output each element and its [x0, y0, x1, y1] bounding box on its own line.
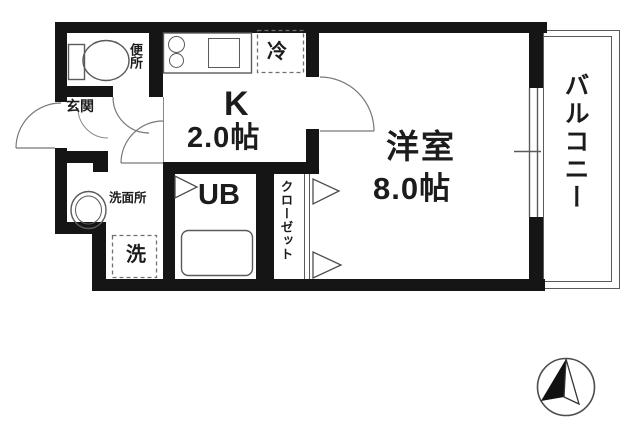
compass-north-icon: [538, 359, 595, 416]
window-icon: [514, 88, 541, 217]
wall-right-upper: [529, 22, 543, 88]
stove-burner-icon: [170, 54, 184, 68]
closet-door-icon: [305, 174, 342, 279]
wall-right-lower: [529, 217, 543, 291]
refrigerator-label: 冷: [267, 42, 287, 62]
closet-door-triangle: [313, 252, 341, 278]
wall-top: [55, 22, 547, 33]
kitchen-size-label: 2.0帖: [187, 124, 260, 153]
washroom-label: 洗面所: [109, 192, 147, 205]
wall-bottom: [92, 279, 545, 291]
balcony-label: バルコニー: [562, 72, 587, 247]
entrance-door-swing-arc: [16, 103, 61, 148]
toilet-tank: [69, 45, 85, 80]
bathtub-icon: [182, 231, 253, 276]
kitchen-sink-icon: [209, 39, 240, 68]
western-room-size-label: 8.0帖: [373, 173, 451, 204]
kitchen-label: K: [224, 87, 249, 121]
door-arc: [320, 77, 374, 131]
western-room-door-swing-arc: [320, 77, 374, 131]
western-room-label: 洋室: [386, 130, 456, 163]
wall-toilet-right: [149, 22, 163, 97]
door-arc: [121, 121, 163, 163]
entrance-label: 玄関: [66, 99, 94, 113]
wall-washroom-ub: [163, 162, 175, 291]
wall-kitchen-room-upper: [306, 22, 319, 77]
wall-ub-closet: [256, 162, 274, 291]
toilet-bowl: [83, 41, 129, 81]
closet-label: クローゼット: [279, 180, 292, 280]
door-arc: [16, 103, 61, 148]
stove-burner-icon: [169, 37, 185, 53]
floor-plan-drawing: [0, 0, 640, 434]
wall-hall-pier: [93, 151, 108, 172]
unit-bath-door-triangle: [175, 176, 197, 198]
compass-needle-light: [564, 359, 579, 404]
kitchen-counter-icon: [164, 33, 252, 73]
washroom-door-swing-arc: [121, 121, 163, 163]
unit-bath-label: UB: [198, 181, 240, 210]
toilet-icon: [69, 41, 130, 81]
washbasin-inner: [76, 196, 102, 224]
toilet-door-swing-arc: [113, 97, 149, 133]
toilet-room-label: 便所: [129, 43, 142, 69]
floor-plan: 便所 玄関 K 2.0帖 冷 洋室 8.0帖 UB 洗面所 洗 クローゼット バ…: [0, 0, 640, 434]
closet-door-triangle: [313, 179, 339, 204]
wall-toilet-bottom: [55, 86, 113, 97]
compass-needle-dark: [541, 359, 566, 401]
wall-mid-horizontal: [163, 162, 319, 174]
washing-machine-label: 洗: [126, 245, 146, 265]
